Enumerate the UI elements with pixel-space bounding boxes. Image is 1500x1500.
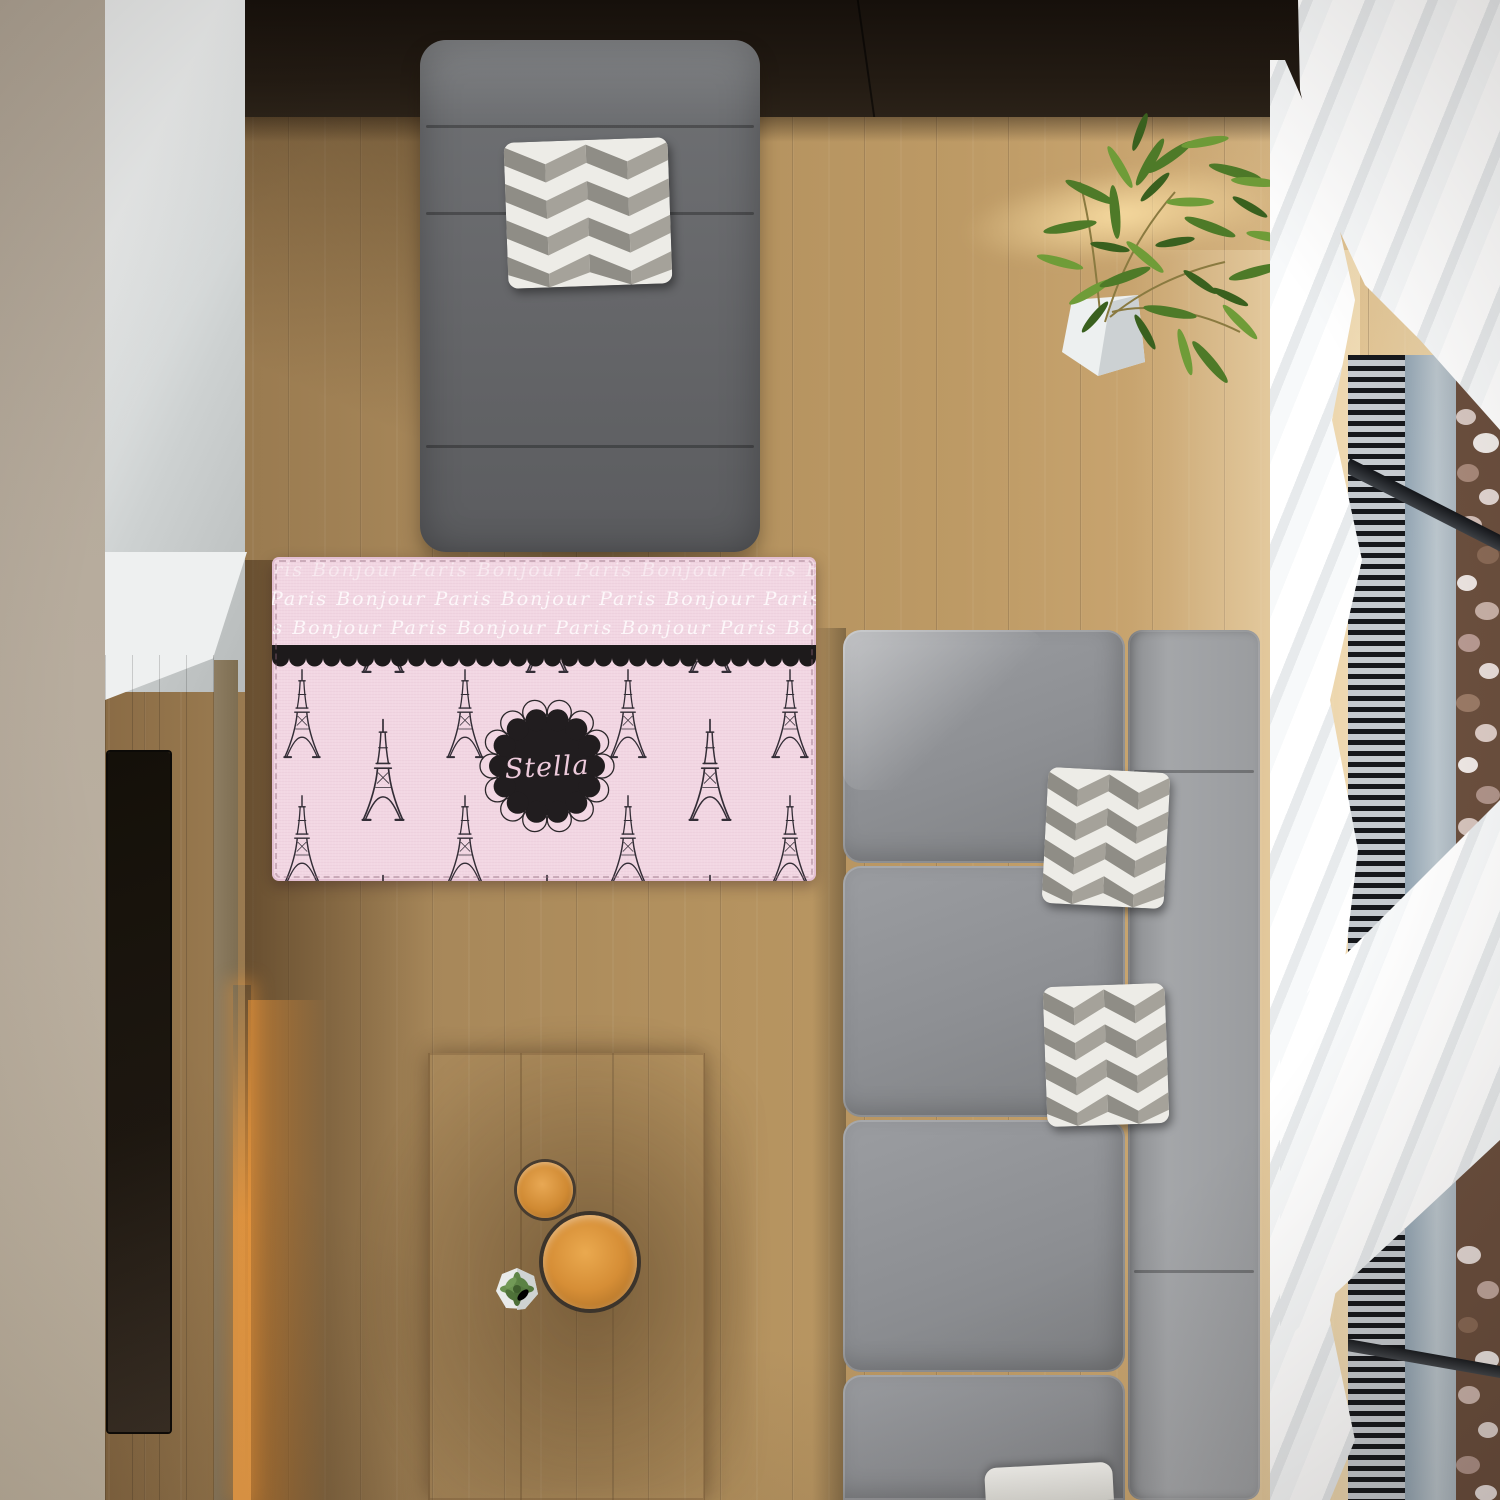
chevron-pattern-icon xyxy=(1043,983,1170,1127)
sofa-chevron-pillow-2 xyxy=(1043,983,1170,1127)
sun-patch xyxy=(843,630,1043,790)
sofa-pillow-3 xyxy=(984,1462,1114,1500)
chair-seam xyxy=(426,445,754,448)
tray-small xyxy=(517,1162,573,1218)
coffee-table xyxy=(428,1053,705,1500)
succulent xyxy=(494,1266,540,1312)
cabinet-seam xyxy=(857,0,875,117)
sofa-cushion xyxy=(843,1120,1125,1372)
chair-seam xyxy=(426,125,754,128)
sofa-backrest-seam xyxy=(1134,1270,1254,1273)
tv-screen xyxy=(108,752,170,1432)
lounge-chair xyxy=(420,40,760,552)
led-glow xyxy=(233,985,251,1500)
curtains xyxy=(1270,0,1500,1500)
chair-backrest-highlight xyxy=(420,40,760,126)
personalized-rug: Paris Bonjour Paris Bonjour Paris Bonjou… xyxy=(272,557,816,881)
chair-chevron-pillow xyxy=(504,137,673,289)
room-scene: Paris Bonjour Paris Bonjour Paris Bonjou… xyxy=(0,0,1500,1500)
chevron-pattern-icon xyxy=(1042,767,1171,909)
chevron-pattern-icon xyxy=(504,137,673,289)
sectional-sofa xyxy=(843,630,1260,1500)
sofa-chevron-pillow-1 xyxy=(1042,767,1171,909)
left-wall xyxy=(0,0,105,1500)
rug-stitch-border xyxy=(275,560,813,878)
tray-large xyxy=(543,1215,637,1309)
